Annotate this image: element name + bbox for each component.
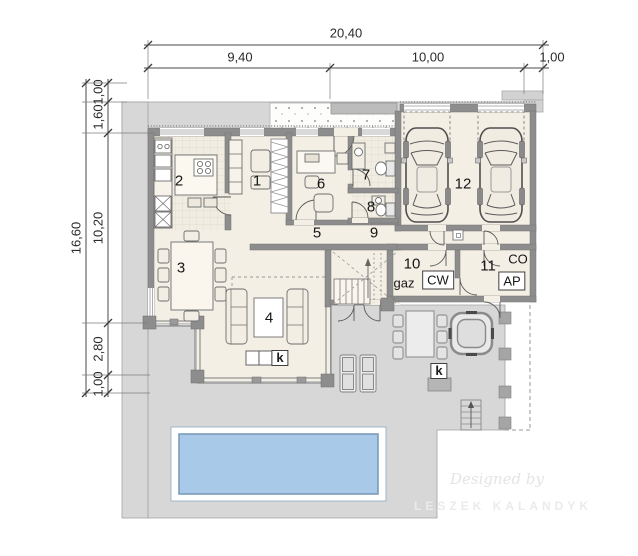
wardrobe [271,139,288,213]
room-label-5: 5 [313,225,321,242]
room-label-3: 3 [177,260,185,277]
dim-left-seg-4: 2,80 [91,336,106,361]
room-label-8: 8 [367,199,375,216]
room-label-9: 9 [370,225,378,242]
garage-car-right [476,128,527,222]
garage-car-left [402,128,453,222]
hot-tub [450,313,493,355]
watermark-name: LESZEK KALANDYK [414,499,592,513]
terrace-furniture [393,311,447,359]
fireplace-label: k [271,350,288,366]
room-label-4: 4 [265,310,273,327]
dim-top-seg-2: 10,00 [412,50,445,65]
hot-water-label: CW [422,271,454,290]
central-heating-label: CO [508,252,528,267]
room-label-10: 10 [404,256,421,273]
room-label-7: 7 [362,167,370,184]
gas-label: gaz [394,276,415,291]
grill-label: k [430,363,447,379]
terrace-steps [461,400,481,430]
dim-top-seg-1: 9,40 [227,50,252,65]
grill [428,378,451,391]
dim-top-total: 20,40 [330,26,363,41]
room-label-11: 11 [480,258,496,275]
dim-left-seg-5: 1,00 [91,371,106,396]
ap-label: AP [498,272,525,291]
swimming-pool [171,427,386,501]
dim-left-seg-3: 10,20 [91,212,106,245]
dim-left-seg-1: 1,00 [91,79,106,104]
room-label-12: 12 [455,176,472,193]
room-label-1: 1 [253,173,261,190]
dim-left-seg-2: 1,60 [91,104,106,129]
room-label-2: 2 [175,173,183,190]
watermark-script: Designed by [450,470,544,488]
room-label-6: 6 [317,176,325,193]
dim-top-seg-3: 1,00 [539,50,564,65]
floor-plan-page: 20,40 9,40 10,00 1,00 16,60 1,00 1,60 10… [0,0,638,556]
dim-left-total: 16,60 [69,222,84,255]
